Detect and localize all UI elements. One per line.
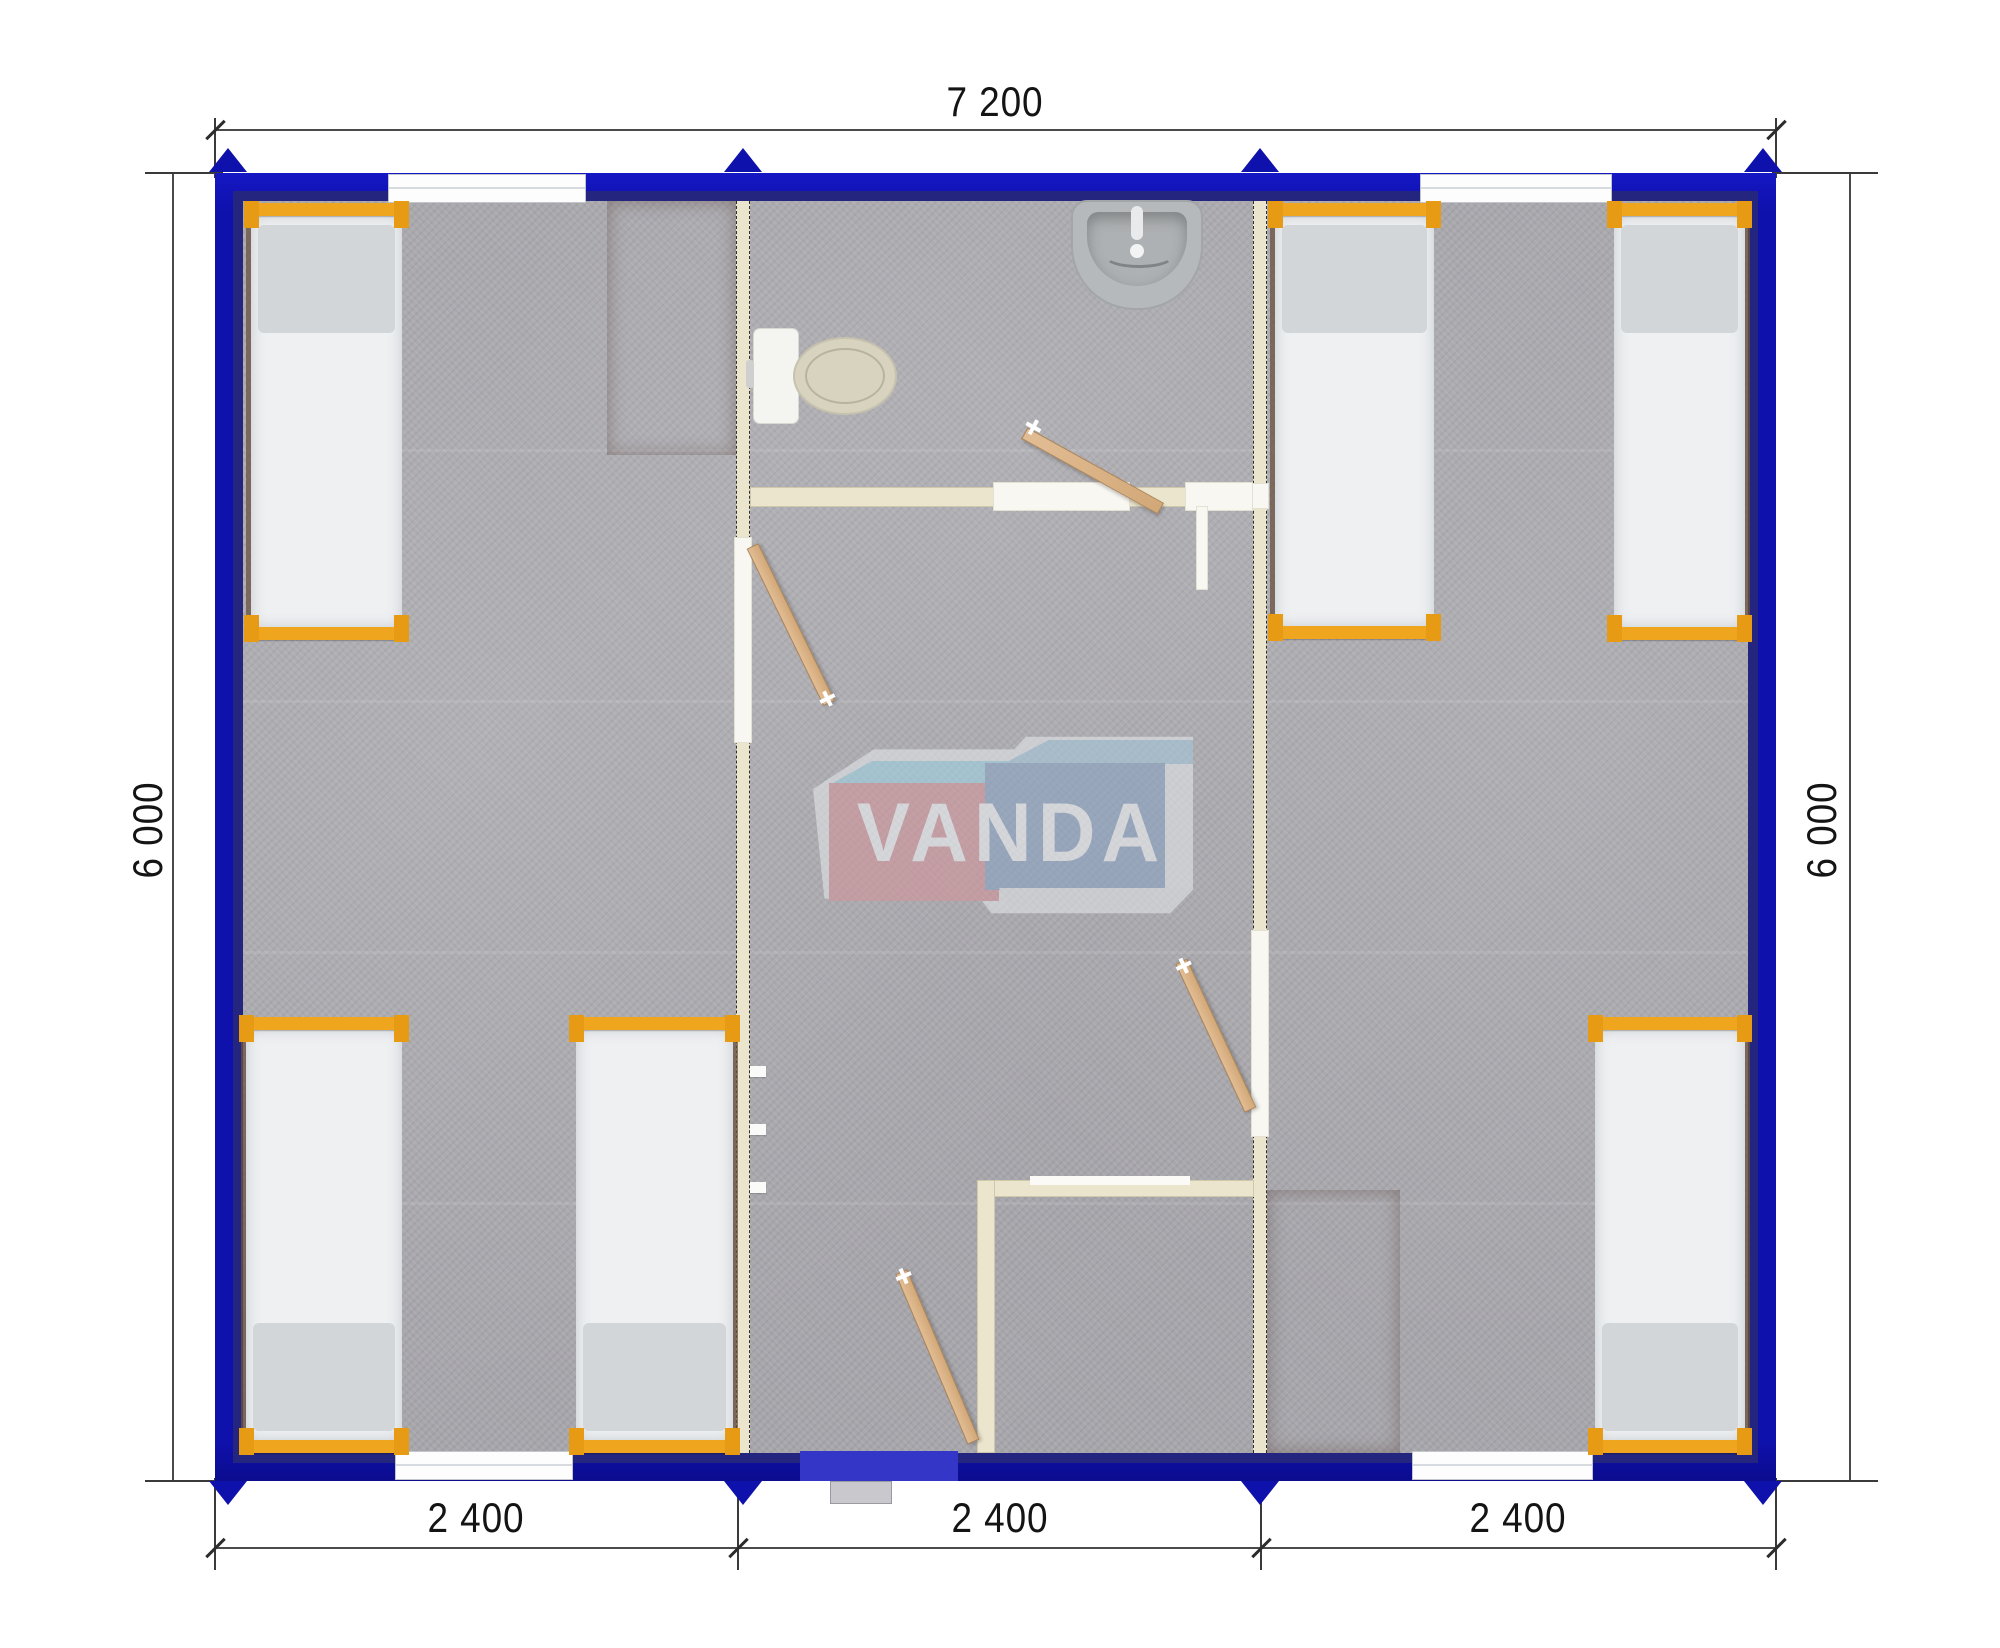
- bed: [1272, 203, 1437, 639]
- entrance-step: [830, 1481, 892, 1504]
- bed: [243, 1017, 405, 1453]
- wall-marker-bottom-left: [209, 1481, 247, 1505]
- dimension-line-right: [1849, 173, 1851, 1481]
- table: [607, 201, 736, 455]
- wall-marker-top-mid2: [1241, 148, 1279, 172]
- bed: [248, 203, 405, 640]
- sink-faucet: [1131, 206, 1143, 240]
- toilet: [793, 337, 897, 415]
- logo-bottom-slab: [999, 888, 1189, 910]
- dim-tick: [1772, 1480, 1878, 1482]
- partition-wall-left: [736, 201, 750, 1453]
- dimension-label-top: 7 200: [925, 78, 1066, 126]
- partition-hook: [750, 1066, 766, 1077]
- bed: [1592, 1017, 1748, 1453]
- wall-junction-plate: [1251, 483, 1269, 509]
- vanda-logo-watermark: VANDA: [813, 735, 1193, 915]
- bed: [1611, 203, 1748, 640]
- entrance-door-segment: [800, 1451, 958, 1481]
- window-bottom-left: [395, 1451, 573, 1480]
- bathroom-wall-stub: [1196, 506, 1208, 590]
- bed: [573, 1017, 736, 1453]
- door-handle: [1176, 960, 1192, 970]
- vestibule-wall-vertical: [977, 1180, 995, 1453]
- toilet-flush-knob: [746, 360, 754, 388]
- wall-marker-top-mid1: [724, 148, 762, 172]
- dimension-label-bottom-1: 2 400: [406, 1494, 547, 1542]
- floor-plan-canvas: 7 200 6 000 6 000 2 400 2 400 2 400: [0, 0, 2000, 1648]
- wall-marker-top-right: [1744, 148, 1782, 172]
- dimension-label-bottom-3: 2 400: [1448, 1494, 1589, 1542]
- dim-tick: [1772, 172, 1878, 174]
- wall-marker-top-left: [209, 148, 247, 172]
- partition-hook: [750, 1182, 766, 1193]
- dimension-line-left: [172, 173, 174, 1481]
- vestibule-wall-highlight: [1030, 1176, 1190, 1185]
- partition-hook: [750, 1124, 766, 1135]
- wall-marker-bottom-right: [1744, 1481, 1782, 1505]
- sink-overflow-line: [1103, 242, 1175, 268]
- dimension-label-right: 6 000: [1798, 760, 1846, 901]
- partition-wall-right: [1253, 201, 1267, 1453]
- door-handle: [895, 1271, 911, 1281]
- window-top-left: [388, 174, 586, 203]
- wall-marker-bottom-mid1: [724, 1481, 762, 1505]
- logo-text: VANDA: [839, 783, 1183, 883]
- dimension-label-left: 6 000: [124, 760, 172, 901]
- dim-tick: [145, 172, 223, 174]
- dimension-line-top: [215, 129, 1776, 131]
- window-bottom-right: [1412, 1451, 1593, 1480]
- toilet-seat-ring: [805, 348, 885, 404]
- wall-marker-bottom-mid2: [1241, 1481, 1279, 1505]
- window-top-right: [1420, 174, 1612, 203]
- dimension-label-bottom-2: 2 400: [930, 1494, 1071, 1542]
- dimension-line-bottom: [215, 1547, 1776, 1549]
- table: [1267, 1190, 1400, 1453]
- door-opening-left-room: [734, 537, 752, 743]
